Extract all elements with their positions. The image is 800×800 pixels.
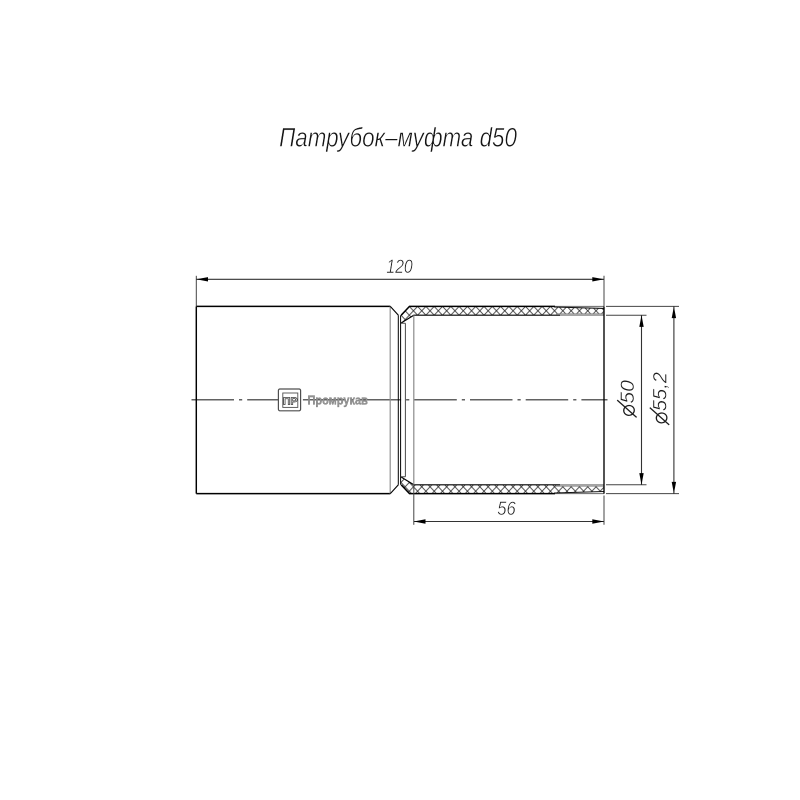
svg-text:120: 120 [386,256,413,278]
svg-text:50: 50 [617,380,639,404]
svg-text:55,2: 55,2 [650,372,672,411]
svg-text:56: 56 [497,498,516,520]
svg-text:ПР: ПР [283,396,298,408]
svg-text:Патрубок–муфта d50: Патрубок–муфта d50 [279,124,517,153]
svg-text:Промрукав: Промрукав [308,394,368,408]
